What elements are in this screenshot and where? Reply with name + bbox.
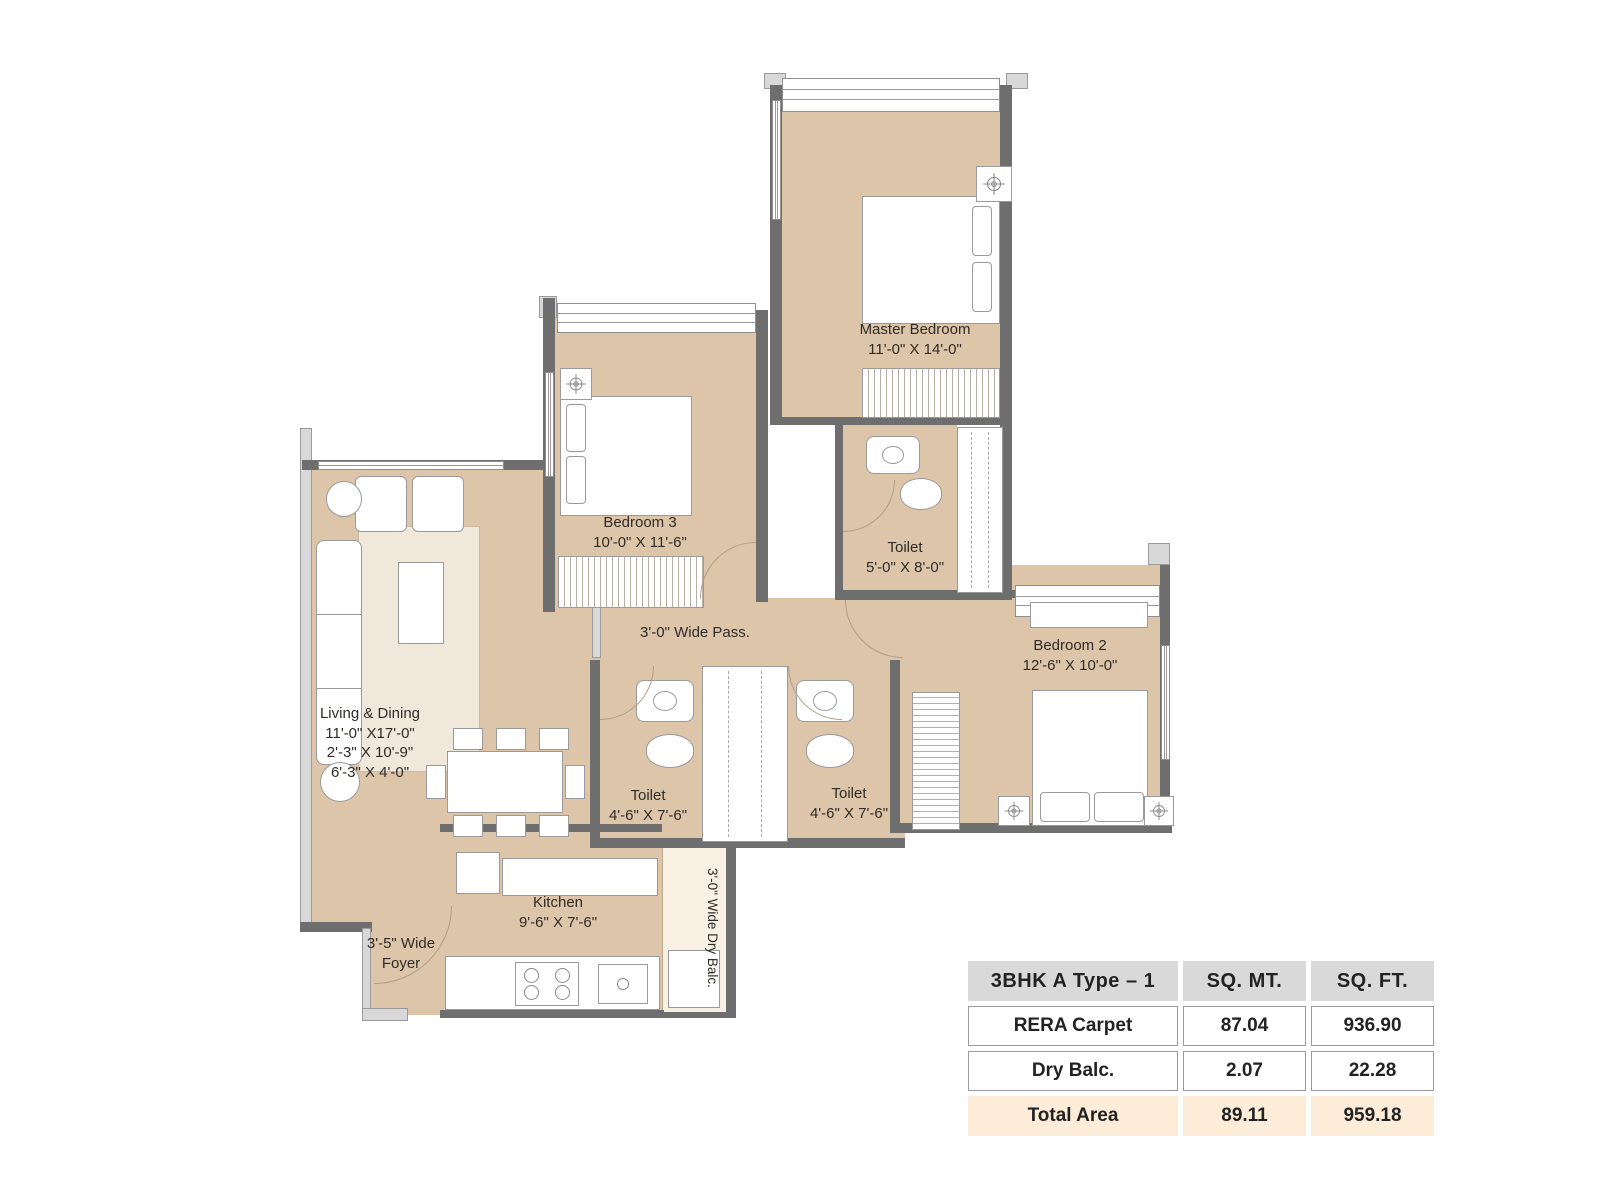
area-table: 3BHK A Type – 1 SQ. MT. SQ. FT. RERA Car… (968, 961, 1434, 1136)
master-fan-box (976, 166, 1012, 202)
dining-chair (453, 815, 483, 837)
dining-table (447, 751, 563, 813)
room-name: Toilet (792, 784, 906, 804)
armchair (412, 476, 464, 532)
dining-chair (496, 815, 526, 837)
dry-balc-label-cell: Dry Balc. (968, 1051, 1178, 1091)
master-left-window (772, 100, 781, 220)
master-toilet-wc (900, 478, 942, 510)
room-dims: 10'-0" X 11'-6" (550, 533, 730, 553)
toilet-left-label: Toilet 4'-6" X 7'-6" (592, 786, 704, 825)
side-table-round (326, 481, 362, 517)
room-dims: 9'-6" X 7'-6" (494, 913, 622, 933)
total-area-sqft-cell: 959.18 (1311, 1096, 1434, 1136)
dining-chair (539, 728, 569, 750)
passage-label: 3'-0" Wide Pass. (610, 623, 780, 643)
master-bedroom-label: Master Bedroom 11'-0" X 14'-0" (825, 320, 1005, 359)
room-dims: 6'-3" X 4'-0" (306, 763, 434, 783)
table-header-plan-type: 3BHK A Type – 1 (968, 961, 1178, 1001)
toilet-left-wc (646, 734, 694, 768)
master-right-wall (1000, 85, 1012, 425)
entry-threshold (362, 1008, 408, 1021)
master-toilet-top-wall (835, 417, 1012, 425)
bedroom3-wardrobe (558, 556, 704, 608)
bedroom3-bed-pillow (566, 456, 586, 504)
toilet-right-label: Toilet 4'-6" X 7'-6" (792, 784, 906, 823)
room-dims: 4'-6" X 7'-6" (592, 806, 704, 826)
table-header-sq-ft: SQ. FT. (1311, 961, 1434, 1001)
bedroom2-bed-pillow (1094, 792, 1144, 822)
room-name: Toilet (592, 786, 704, 806)
rera-carpet-sqmt-cell: 87.04 (1183, 1006, 1306, 1046)
dining-chair (539, 815, 569, 837)
room-dims: 11'-0" X17'-0" (306, 724, 434, 744)
armchair (355, 476, 407, 532)
bedroom3-fan-box (560, 368, 592, 400)
room-name: Living & Dining (306, 704, 434, 724)
bedroom2-right-window (1161, 645, 1170, 760)
bedroom2-wardrobe (912, 692, 960, 830)
room-name: Bedroom 3 (550, 513, 730, 533)
bedroom2-side-table-right (1144, 796, 1174, 826)
room-name: Bedroom 2 (995, 636, 1145, 656)
foyer-label: 3'-5" Wide Foyer (358, 934, 444, 973)
living-top-window (318, 461, 504, 470)
bedroom3-top-window (557, 303, 756, 333)
bedroom3-bed-pillow (566, 404, 586, 452)
dry-balc-sqmt-cell: 2.07 (1183, 1051, 1306, 1091)
kitchen-counter-top (502, 858, 658, 896)
bedroom2-side-table-left (998, 796, 1030, 826)
living-left-window-wall (300, 428, 312, 930)
dry-balcony-bottom-wall (662, 1012, 736, 1018)
bedroom2-label: Bedroom 2 12'-6" X 10'-0" (995, 636, 1145, 675)
central-duct (702, 666, 788, 842)
floor-plan-canvas: Master Bedroom 11'-0" X 14'-0" Bedroom 3… (0, 0, 1600, 1200)
table-header-sq-mt: SQ. MT. (1183, 961, 1306, 1001)
room-dims: 12'-6" X 10'-0" (995, 656, 1145, 676)
passage-left-door-jamb (592, 600, 601, 658)
room-dims: 2'-3" X 10'-9" (306, 743, 434, 763)
ceiling-fan-icon (1003, 800, 1025, 822)
master-top-window (782, 78, 1000, 112)
kitchen-bottom-wall (440, 1010, 664, 1018)
dry-balc-sqft-cell: 22.28 (1311, 1051, 1434, 1091)
rera-carpet-sqft-cell: 936.90 (1311, 1006, 1434, 1046)
room-dims: 5'-0" X 8'-0" (843, 558, 967, 578)
bedroom2-dresser (1030, 602, 1148, 628)
ceiling-fan-icon (981, 171, 1007, 197)
dining-chair (565, 765, 585, 799)
total-area-label-cell: Total Area (968, 1096, 1178, 1136)
room-name: Toilet (843, 538, 967, 558)
room-dims: 3'-0" Wide Dry Balc. (705, 868, 720, 988)
rera-carpet-label-cell: RERA Carpet (968, 1006, 1178, 1046)
refrigerator (456, 852, 500, 894)
dry-balcony-label: 3'-0" Wide Dry Balc. (670, 848, 720, 1008)
dining-chair (453, 728, 483, 750)
master-bottom-wall (770, 417, 845, 425)
living-dining-label: Living & Dining 11'-0" X17'-0" 2'-3" X 1… (306, 704, 434, 782)
bedroom2-bed-pillow (1040, 792, 1090, 822)
ceiling-fan-icon (564, 372, 588, 396)
dining-chair (496, 728, 526, 750)
master-toilet-label: Toilet 5'-0" X 8'-0" (843, 538, 967, 577)
bedroom3-left-window (545, 372, 554, 477)
room-name: Kitchen (494, 893, 622, 913)
room-name: Master Bedroom (825, 320, 1005, 340)
bedroom3-right-wall (756, 310, 768, 602)
coffee-table (398, 562, 444, 644)
room-dims: 4'-6" X 7'-6" (792, 804, 906, 824)
room-dims: 3'-0" Wide Pass. (610, 623, 780, 643)
master-bed-pillow (972, 262, 992, 312)
room-dims: 3'-5" Wide Foyer (358, 934, 444, 973)
master-wardrobe (862, 368, 1000, 418)
dry-balcony-right-wall (726, 840, 736, 1016)
room-dims: 11'-0" X 14'-0" (825, 340, 1005, 360)
kitchen-label: Kitchen 9'-6" X 7'-6" (494, 893, 622, 932)
master-toilet-left-wall (835, 425, 843, 597)
total-area-sqmt-cell: 89.11 (1183, 1096, 1306, 1136)
stove (515, 962, 579, 1006)
master-bed-pillow (972, 206, 992, 256)
bedroom3-label: Bedroom 3 10'-0" X 11'-6" (550, 513, 730, 552)
master-toilet-basin (866, 436, 920, 474)
toilet-right-wc (806, 734, 854, 768)
ceiling-fan-icon (1148, 800, 1170, 822)
bedroom2-top-cap (1148, 543, 1170, 565)
kitchen-sink (598, 964, 648, 1004)
